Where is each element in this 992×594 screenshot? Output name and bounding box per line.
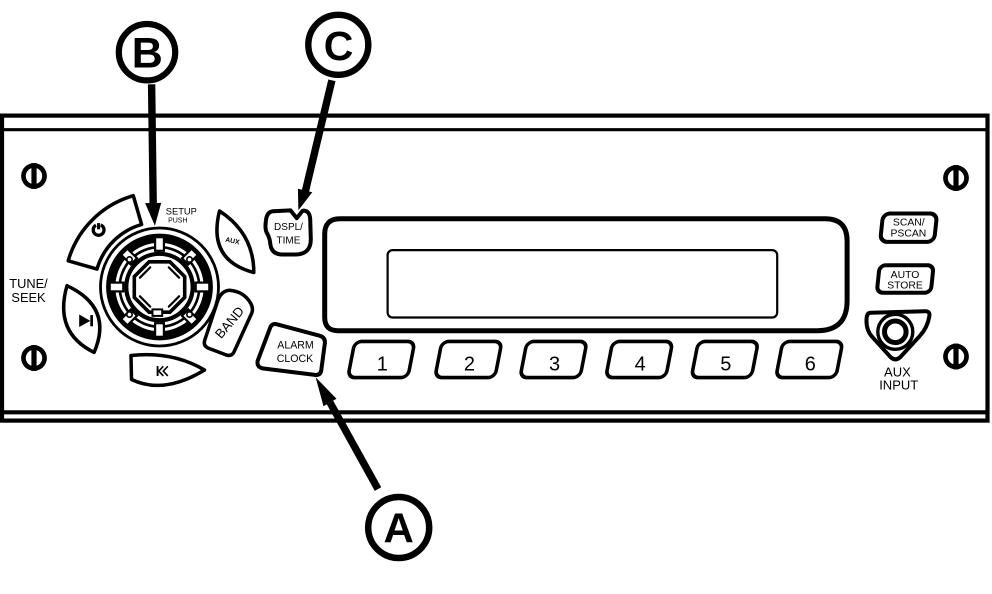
svg-text:STORE: STORE [887,281,923,292]
svg-text:TIME: TIME [277,235,301,246]
svg-text:ALARM: ALARM [277,340,314,352]
svg-text:C: C [324,23,354,69]
svg-text:6: 6 [805,354,816,376]
svg-text:4: 4 [635,354,646,376]
svg-text:B: B [132,30,163,78]
svg-text:SEEK: SEEK [11,290,46,305]
svg-text:PSCAN: PSCAN [890,229,926,240]
svg-text:SCAN/: SCAN/ [893,217,925,228]
svg-text:AUTO: AUTO [891,270,920,281]
svg-text:DSPL/: DSPL/ [274,222,303,233]
svg-text:SETUP: SETUP [166,206,197,216]
svg-text:A: A [384,505,414,552]
svg-text:1: 1 [377,354,388,376]
svg-text:INPUT: INPUT [879,378,918,393]
svg-text:5: 5 [720,354,731,376]
svg-text:CLOCK: CLOCK [277,353,314,365]
svg-text:PUSH: PUSH [168,218,187,225]
svg-text:2: 2 [464,354,475,376]
svg-text:3: 3 [549,354,560,376]
svg-text:TUNE/: TUNE/ [9,276,48,291]
